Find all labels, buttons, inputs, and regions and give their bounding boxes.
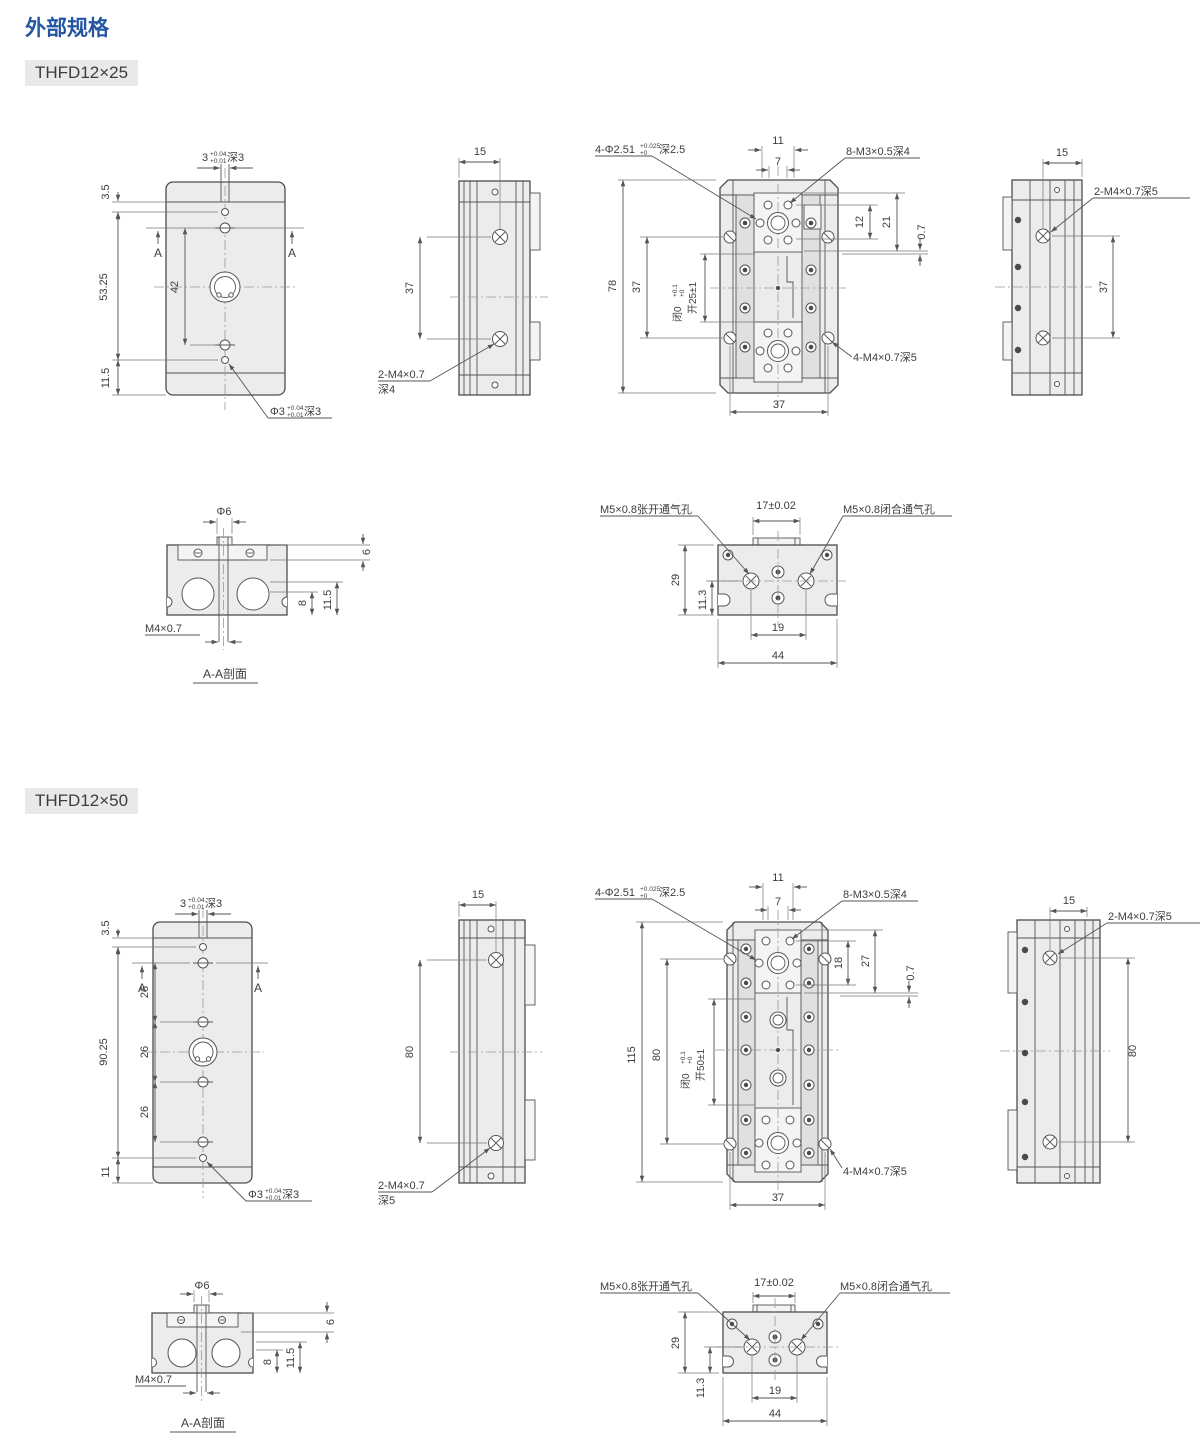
s1-front-total: 53.25 [98, 273, 110, 301]
s1-side-thread-depth: 深4 [378, 383, 395, 396]
s1-front-hole: Φ3 [270, 406, 285, 418]
s2-front-hole: Φ3 [248, 1189, 263, 1201]
s2-aa-d6: 6 [325, 1319, 337, 1325]
s1-top-open-label: 开25±1 [688, 281, 699, 314]
s2-top-m3: 8-M3×0.5深4 [843, 888, 907, 901]
svg-text:+0.1: +0.1 [672, 284, 679, 297]
s1-front-slot-depth: 深3 [227, 151, 244, 164]
s1-side-width: 15 [474, 146, 486, 158]
s2-bottom-view: M5×0.8张开通气孔 17±0.02 M5×0.8闭合通气孔 29 11.3 … [600, 1277, 950, 1426]
s2-top-width: 37 [772, 1192, 784, 1204]
s1-front-sec-mark-right: A [288, 246, 296, 260]
s2-top-dowel-tol-u: +0.025 [640, 886, 660, 893]
s2-top-d11: 11 [772, 872, 783, 884]
s2-aa-d115: 11.5 [285, 1348, 297, 1369]
s1-top-dowel-tol-l: +0 [640, 150, 648, 157]
svg-text:+0.1: +0.1 [680, 1051, 687, 1064]
s2-bottom-d29: 29 [670, 1337, 682, 1349]
s2-top-open-label: 开50±1 [696, 1048, 707, 1081]
s2-right-view: 15 2-M4×0.7深5 80 [1000, 895, 1200, 1183]
s2-bottom-open-port: M5×0.8张开通气孔 [600, 1279, 692, 1293]
s2-front-sec-mark-left: A [138, 981, 146, 995]
s1-front-slot-dim: 3 [202, 152, 208, 164]
s2-bottom-d113: 11.3 [695, 1378, 707, 1399]
s1-aa-caption: A-A剖面 [203, 667, 247, 681]
s2-top-height: 115 [626, 1046, 638, 1064]
s1-side-thread: 2-M4×0.7 [378, 369, 425, 381]
s2-front-top-offset: 3.5 [100, 920, 112, 935]
s1-top-d11: 11 [772, 135, 783, 147]
s1-top-d21: 21 [881, 216, 893, 228]
s1-top-dowel-depth: 深2.5 [659, 143, 685, 156]
s2-right-pitch: 80 [1127, 1045, 1139, 1057]
s1-bottom-d29: 29 [670, 574, 682, 586]
s2-top-pitch: 80 [651, 1049, 663, 1061]
s2-top-dowel-depth: 深2.5 [659, 886, 685, 899]
s1-top-dowel-tol-u: +0.025 [640, 143, 660, 150]
s2-aa-dia: Φ6 [195, 1280, 210, 1292]
s1-front-slot-tol-u: +0.04 [210, 151, 227, 158]
s2-aa-caption: A-A剖面 [181, 1416, 225, 1430]
s1-front-sec-mark-left: A [154, 246, 162, 260]
s1-section-aa: Φ6 6 8 11.5 M4×0.7 A-A剖面 [145, 506, 373, 683]
s2-aa-d8: 8 [262, 1359, 274, 1365]
s1-top-pitch: 37 [631, 281, 643, 293]
s1-aa-thread: M4×0.7 [145, 623, 182, 635]
s1-side-pitch: 37 [404, 282, 416, 294]
s2-bottom-d19: 19 [769, 1385, 781, 1397]
s1-top-width: 37 [773, 399, 785, 411]
s2-front-pitch3: 26 [139, 1106, 151, 1118]
s2-top-d27: 27 [860, 955, 872, 967]
s1-right-pitch: 37 [1098, 281, 1110, 293]
s1-aa-d115: 11.5 [322, 590, 334, 611]
s2-bottom-width-tol: 17±0.02 [754, 1277, 794, 1289]
s2-front-hole-tol-l: +0.01 [265, 1195, 282, 1202]
s2-front-view: 3 +0.04 +0.01 深3 3.5 90.25 11 26 26 [98, 897, 312, 1202]
s1-aa-d6: 6 [361, 549, 373, 555]
s2-side-view: 15 80 2-M4×0.7 深5 [378, 889, 542, 1207]
s2-front-hole-depth: 深3 [282, 1188, 299, 1201]
s2-right-width: 15 [1063, 895, 1075, 907]
s1-top-close-label: 闭0 +0.1 +0 [671, 284, 686, 322]
s1-top-m4: 4-M4×0.7深5 [853, 351, 917, 364]
s1-aa-dia: Φ6 [217, 506, 232, 518]
s1-bottom-open-port: M5×0.8张开通气孔 [600, 502, 692, 516]
svg-text:闭0: 闭0 [679, 1073, 692, 1089]
svg-text:开50±1: 开50±1 [696, 1048, 707, 1081]
s1-right-width: 15 [1056, 147, 1068, 159]
s2-front-bottom-offset: 11 [100, 1166, 112, 1177]
s1-aa-d8: 8 [297, 600, 309, 606]
s1-side-view: 15 37 2-M4×0.7 深4 [378, 146, 548, 396]
s1-bottom-d113: 11.3 [697, 590, 709, 611]
s2-section-aa: Φ6 6 8 11.5 M4×0.7 A-A剖面 [135, 1280, 337, 1432]
s2-top-view: 11 7 4-Φ2.51 +0.025 +0 深2.5 8-M3×0.5深4 [595, 872, 918, 1210]
s2-front-slot-tol-u: +0.04 [188, 897, 205, 904]
s2-top-m4: 4-M4×0.7深5 [843, 1165, 907, 1178]
s1-front-view: 3 +0.04 +0.01 深3 3.5 53.25 11.5 42 [98, 151, 332, 419]
s2-top-d18: 18 [833, 957, 845, 969]
svg-text:开25±1: 开25±1 [688, 281, 699, 314]
s2-front-total: 90.25 [98, 1038, 110, 1066]
s1-top-dowel: 4-Φ2.51 [595, 144, 635, 156]
s2-right-thread: 2-M4×0.7深5 [1108, 910, 1172, 923]
s2-front-slot-dim: 3 [180, 898, 186, 910]
s1-front-top-offset: 3.5 [100, 184, 112, 199]
s2-front-slot-depth: 深3 [205, 897, 222, 910]
s1-bottom-view: M5×0.8张开通气孔 17±0.02 M5×0.8闭合通气孔 29 11.3 … [600, 500, 952, 668]
s1-front-bottom-offset: 11.5 [100, 368, 112, 389]
s1-front-slot-tol-l: +0.01 [210, 158, 227, 165]
s1-front-hole-tol-u: +0.04 [287, 405, 304, 412]
s1-bottom-width-tol: 17±0.02 [756, 500, 796, 512]
s1-bottom-d44: 44 [772, 650, 784, 662]
s2-top-dowel-tol-l: +0 [640, 893, 648, 900]
s1-front-hole-depth: 深3 [304, 405, 321, 418]
svg-text:闭0: 闭0 [671, 306, 684, 322]
s2-side-width: 15 [472, 889, 484, 901]
svg-text:+0: +0 [679, 289, 686, 297]
s2-top-dowel: 4-Φ2.51 [595, 887, 635, 899]
s1-right-view: 15 2-M4×0.7深5 37 [995, 147, 1190, 395]
s2-aa-thread: M4×0.7 [135, 1374, 172, 1386]
s1-top-m3: 8-M3×0.5深4 [846, 145, 910, 158]
s1-top-view: 11 7 4-Φ2.51 +0.025 +0 深2.5 8-M3×0.5深4 [595, 135, 928, 416]
s2-top-close-label: 闭0 +0.1 +0 [679, 1051, 694, 1089]
s2-top-d07: 0.7 [905, 965, 917, 980]
s1-bottom-close-port: M5×0.8闭合通气孔 [843, 502, 935, 516]
s1-front-hole-tol-l: +0.01 [287, 412, 304, 419]
s2-side-thread: 2-M4×0.7 [378, 1180, 425, 1192]
s2-side-thread-depth: 深5 [378, 1194, 395, 1207]
catalog-page: 外部规格 THFD12×25 THFD12×50 [0, 0, 1200, 1446]
s2-bottom-d44: 44 [769, 1408, 781, 1420]
s1-top-d7: 7 [775, 156, 781, 168]
s1-right-thread: 2-M4×0.7深5 [1094, 185, 1158, 198]
s2-side-pitch: 80 [404, 1046, 416, 1058]
s1-top-d07: 0.7 [916, 224, 928, 239]
s1-front-pitch: 42 [169, 281, 181, 293]
s2-front-pitch2: 26 [139, 1046, 151, 1058]
svg-text:+0: +0 [687, 1056, 694, 1064]
s1-top-height: 78 [607, 280, 619, 292]
s2-front-slot-tol-l: +0.01 [188, 904, 205, 911]
s2-bottom-close-port: M5×0.8闭合通气孔 [840, 1279, 932, 1293]
s2-top-d7: 7 [775, 896, 781, 908]
s2-front-hole-tol-u: +0.04 [265, 1188, 282, 1195]
s2-front-sec-mark-right: A [254, 981, 262, 995]
s1-top-d12: 12 [854, 216, 866, 228]
s1-bottom-d19: 19 [772, 622, 784, 634]
drawing-canvas: 3 +0.04 +0.01 深3 3.5 53.25 11.5 42 [0, 0, 1200, 1446]
